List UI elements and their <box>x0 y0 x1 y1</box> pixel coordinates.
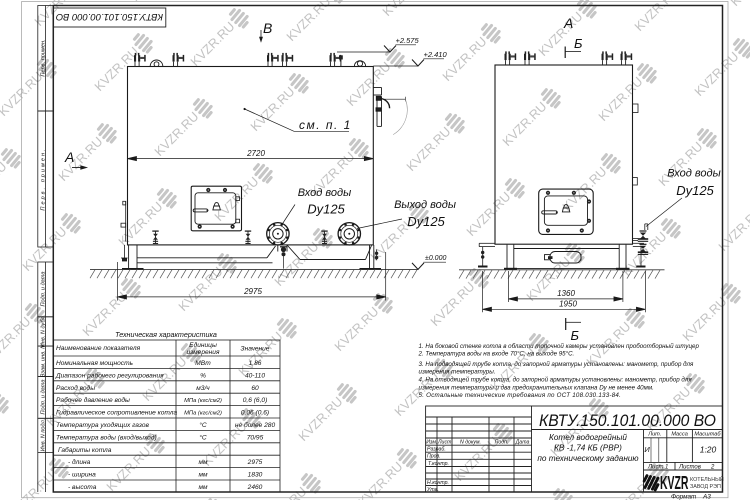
svg-text:Котел водогрейный: Котел водогрейный <box>549 433 627 442</box>
svg-text:КВ -1,74 КБ (РВР): КВ -1,74 КБ (РВР) <box>554 444 622 453</box>
svg-text:+2.410: +2.410 <box>424 50 448 59</box>
svg-text:Значение: Значение <box>241 346 270 353</box>
svg-text:Подп.: Подп. <box>495 439 509 445</box>
svg-text:0,06 (0,6): 0,06 (0,6) <box>241 410 269 417</box>
svg-text:5. Остальные технические треб: 5. Остальные технические требования по О… <box>419 392 622 399</box>
svg-text:м3/ч: м3/ч <box>196 385 210 392</box>
svg-text:Перв. примен.: Перв. примен. <box>41 39 47 76</box>
svg-text:- высота: - высота <box>68 484 97 491</box>
svg-text:1:20: 1:20 <box>700 445 717 455</box>
svg-text:Выход воды: Выход воды <box>394 199 456 211</box>
svg-text:Лист: Лист <box>437 439 452 445</box>
svg-text:А: А <box>563 15 573 31</box>
svg-text:Диапазон рабочего регулировани: Диапазон рабочего регулирования <box>55 371 164 379</box>
svg-text:°С: °С <box>199 433 207 441</box>
svg-text:Масштаб: Масштаб <box>694 431 721 437</box>
svg-text:Взам. инв. N: Взам. инв. N <box>41 344 47 378</box>
svg-text:Dy125: Dy125 <box>407 214 445 229</box>
svg-text:Температура воды (вход/выход): Температура воды (вход/выход) <box>56 433 157 441</box>
svg-text:2975: 2975 <box>243 287 262 296</box>
svg-text:Лист: Лист <box>647 464 663 470</box>
svg-text:Разраб.: Разраб. <box>427 447 446 453</box>
svg-text:не более 280: не более 280 <box>235 421 276 429</box>
svg-text:Единицы: Единицы <box>189 341 217 349</box>
svg-text:60: 60 <box>251 385 259 392</box>
svg-text:- длина: - длина <box>68 458 91 466</box>
svg-text:- ширина: - ширина <box>68 472 96 479</box>
svg-text:2: 2 <box>710 464 715 470</box>
svg-text:Пров.: Пров. <box>427 454 441 460</box>
svg-text:см. п. 1: см. п. 1 <box>299 118 352 132</box>
svg-text:А: А <box>64 149 74 165</box>
svg-text:измерения температуры.: измерения температуры. <box>419 369 496 376</box>
svg-text:0,6 (6,0): 0,6 (6,0) <box>243 397 268 404</box>
svg-text:Вход воды: Вход воды <box>667 168 720 180</box>
svg-text:МПа (кгс/см2): МПа (кгс/см2) <box>184 411 222 417</box>
svg-text:2460: 2460 <box>247 484 263 491</box>
svg-text:Техническая характеристика: Техническая характеристика <box>115 330 217 339</box>
svg-text:КОТЕЛЬНЫЙ: КОТЕЛЬНЫЙ <box>690 475 724 483</box>
svg-text:МВт: МВт <box>195 360 211 367</box>
svg-text:Подп. и дата: Подп. и дата <box>41 379 47 414</box>
svg-text:измерения температуры и два пр: измерения температуры и два предохраните… <box>419 384 654 391</box>
svg-text:Подп. и дата: Подп. и дата <box>41 271 47 306</box>
svg-text:±0.000: ±0.000 <box>425 255 446 262</box>
svg-text:Гидравлическое сопротивление к: Гидравлическое сопротивление котла <box>56 409 177 417</box>
svg-text:70/95: 70/95 <box>247 434 264 441</box>
svg-text:мм: мм <box>198 484 208 491</box>
svg-text:4. На отводящей трубе котла,: 4. На отводящей трубе котла, до запорной… <box>419 377 693 384</box>
svg-text:2. Температура воды на входе: 2. Температура воды на входе 70°С, на вы… <box>418 350 575 357</box>
svg-text:Формат: Формат <box>671 494 697 500</box>
svg-text:МПа (кгс/см2): МПа (кгс/см2) <box>184 398 222 404</box>
svg-text:°С: °С <box>199 421 207 429</box>
svg-text:Расход воды: Расход воды <box>56 384 95 392</box>
svg-text:А3: А3 <box>702 494 711 500</box>
svg-text:%: % <box>200 372 206 379</box>
svg-text:Т.контр.: Т.контр. <box>428 461 449 467</box>
svg-text:+2.575: +2.575 <box>396 36 420 45</box>
svg-text:Dy125: Dy125 <box>307 202 345 217</box>
svg-text:И: И <box>644 445 650 454</box>
svg-text:1950: 1950 <box>559 300 577 309</box>
svg-text:3. На подводящей трубе котла,: 3. На подводящей трубе котла, до запорно… <box>419 361 695 368</box>
svg-text:1,86: 1,86 <box>249 360 262 367</box>
svg-text:Б: Б <box>574 36 583 51</box>
svg-text:ЗАВОД РЭП: ЗАВОД РЭП <box>690 484 721 490</box>
svg-text:мм: мм <box>198 459 208 466</box>
svg-text:Dy125: Dy125 <box>676 183 714 198</box>
svg-text:КВТУ.150.101.00.000 ВО: КВТУ.150.101.00.000 ВО <box>539 411 716 430</box>
svg-text:1: 1 <box>665 464 668 470</box>
svg-text:Лит.: Лит. <box>647 431 661 437</box>
svg-text:по техническому заданию: по техническому заданию <box>537 454 638 463</box>
svg-text:Масса: Масса <box>671 431 688 437</box>
svg-text:2720: 2720 <box>246 149 265 158</box>
svg-text:Перв. примен.: Перв. примен. <box>41 147 47 210</box>
svg-text:В: В <box>263 20 272 36</box>
svg-text:1830: 1830 <box>248 472 263 479</box>
svg-text:Листов: Листов <box>678 464 701 470</box>
svg-text:мм: мм <box>198 472 208 479</box>
svg-text:40-110: 40-110 <box>245 372 265 379</box>
svg-text:Рабочее давление воды: Рабочее давление воды <box>56 396 130 404</box>
svg-text:измерения: измерения <box>187 349 220 356</box>
svg-text:Номинальная мощность: Номинальная мощность <box>56 360 134 367</box>
svg-text:Инв. N дубл.: Инв. N дубл. <box>41 315 47 347</box>
svg-text:1. На боковой стенке котла в: 1. На боковой стенке котла в области топ… <box>419 343 700 350</box>
svg-text:Утв.: Утв. <box>427 487 439 493</box>
svg-text:2975: 2975 <box>247 459 263 466</box>
svg-text:N докум.: N докум. <box>460 439 481 445</box>
svg-text:Н.контр.: Н.контр. <box>427 480 449 486</box>
svg-text:Б: Б <box>571 328 580 343</box>
svg-text:Температура уходящих газов: Температура уходящих газов <box>56 421 149 429</box>
svg-text:Габариты котла: Габариты котла <box>58 446 112 454</box>
svg-text:Наименование показателя: Наименование показателя <box>56 345 141 352</box>
svg-text:Инв. N подл.: Инв. N подл. <box>41 419 47 452</box>
svg-text:Дата: Дата <box>515 439 530 445</box>
svg-text:Вход воды: Вход воды <box>298 187 351 199</box>
svg-text:KVZR: KVZR <box>660 472 689 493</box>
svg-text:Изм.: Изм. <box>426 439 437 445</box>
svg-text:КВТУ.150.101.00.000 ВО: КВТУ.150.101.00.000 ВО <box>55 11 163 22</box>
svg-text:1360: 1360 <box>557 289 575 298</box>
